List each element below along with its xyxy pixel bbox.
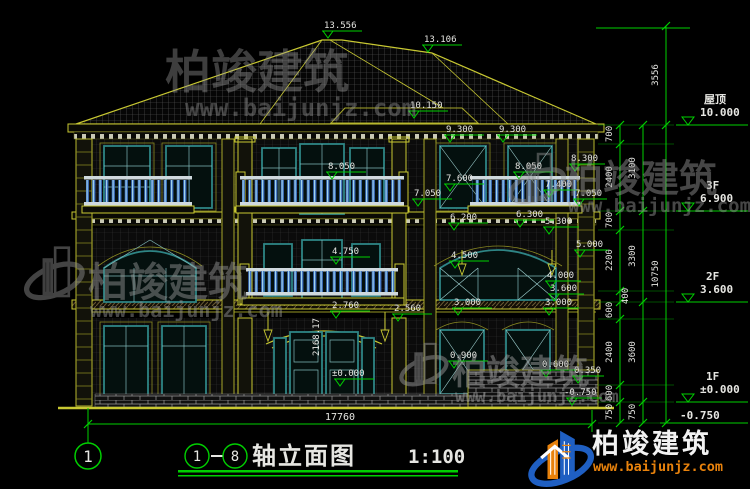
scale-label: 1:100 bbox=[408, 446, 465, 468]
dim-chain-label: 750 bbox=[628, 404, 638, 420]
dim-chain-label: 10750 bbox=[651, 260, 661, 287]
elevation-label: 9.300 bbox=[446, 125, 473, 135]
elevation-label: 6.300 bbox=[516, 210, 543, 220]
dim-chain-label: 600 bbox=[605, 302, 615, 318]
elevation-label: 2.560 bbox=[394, 304, 421, 314]
elevation-label: 4.000 bbox=[547, 271, 574, 281]
level-value: 10.000 bbox=[700, 106, 740, 119]
elevation-label: ±0.000 bbox=[332, 369, 365, 379]
watermark-url: www.baijunjz.com bbox=[455, 387, 619, 407]
watermark-url: www.baijunjz.com bbox=[185, 94, 416, 122]
level-name: 1F bbox=[706, 370, 719, 383]
brand-logo-url: www.baijunjz.com bbox=[593, 459, 723, 475]
elevation-label: 9.300 bbox=[499, 125, 526, 135]
axis-bubble-number: 1 bbox=[83, 447, 93, 466]
level-name: 2F bbox=[706, 270, 719, 283]
dim-chain-label: 700 bbox=[605, 126, 615, 142]
level-name: 屋顶 bbox=[704, 93, 726, 106]
elevation-label: 4.750 bbox=[332, 247, 359, 257]
elevation-label: 8.050 bbox=[328, 162, 355, 172]
elevation-label: 6.200 bbox=[450, 213, 477, 223]
elevation-label: 5.300 bbox=[545, 217, 572, 227]
title-underline-thin bbox=[178, 475, 458, 477]
dim-chain-label: 2400 bbox=[605, 341, 615, 363]
watermark-url: www.baijunjz.com bbox=[90, 298, 283, 322]
level-value: -0.750 bbox=[680, 409, 720, 422]
dim-chain-label: 400 bbox=[621, 288, 631, 304]
watermark-url: www.baijunjz.com bbox=[568, 195, 750, 217]
level-value: 3.600 bbox=[700, 283, 733, 296]
arc-radius-note: 2168.17 bbox=[312, 318, 322, 356]
axis-start-number: 1 bbox=[193, 449, 201, 465]
dim-chain-label: 3600 bbox=[628, 341, 638, 363]
elevation-label: 7.050 bbox=[414, 189, 441, 199]
elevation-label: 3.600 bbox=[550, 284, 577, 294]
dim-chain-label: 3556 bbox=[651, 64, 661, 86]
elevation-label: 7.600 bbox=[446, 174, 473, 184]
elevation-label: 3.000 bbox=[545, 298, 572, 308]
plinth-bricks bbox=[95, 394, 470, 407]
elevation-label: 2.760 bbox=[332, 301, 359, 311]
watermark-brand: 柏竣建筑 bbox=[165, 45, 349, 99]
elevation-label: 4.500 bbox=[451, 251, 478, 261]
brand-logo-text: 柏竣建筑 bbox=[592, 428, 712, 460]
dim-chain-label: 2200 bbox=[605, 249, 615, 271]
elevation-label: 3.000 bbox=[454, 298, 481, 308]
title-underline bbox=[178, 470, 458, 473]
elevation-label: 13.556 bbox=[324, 21, 357, 31]
level-value: ±0.000 bbox=[700, 383, 740, 396]
drawing-title: 轴立面图 bbox=[252, 442, 356, 470]
elevation-label: 13.106 bbox=[424, 35, 457, 45]
dim-chain-label: 3300 bbox=[628, 245, 638, 267]
axis-end-number: 8 bbox=[231, 449, 239, 465]
drawing-canvas: 700 2400 700 2200 400 600 2400 600 750 3… bbox=[0, 0, 750, 489]
elevation-label: 5.000 bbox=[576, 240, 603, 250]
total-width-dim: 17760 bbox=[325, 412, 355, 423]
cad-elevation-screenshot: 700 2400 700 2200 400 600 2400 600 750 3… bbox=[0, 0, 750, 489]
